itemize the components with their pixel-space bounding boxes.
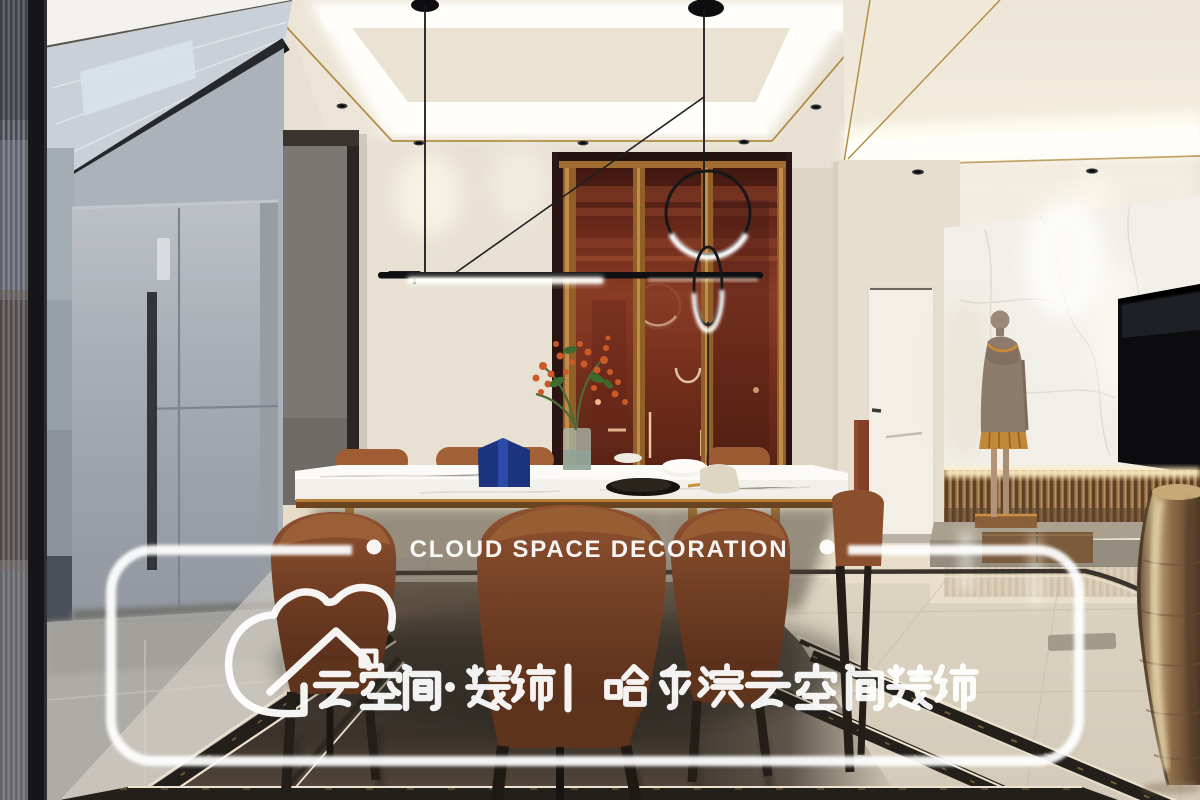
svg-text:CLOUD SPACE DECORATION: CLOUD SPACE DECORATION xyxy=(410,536,789,563)
